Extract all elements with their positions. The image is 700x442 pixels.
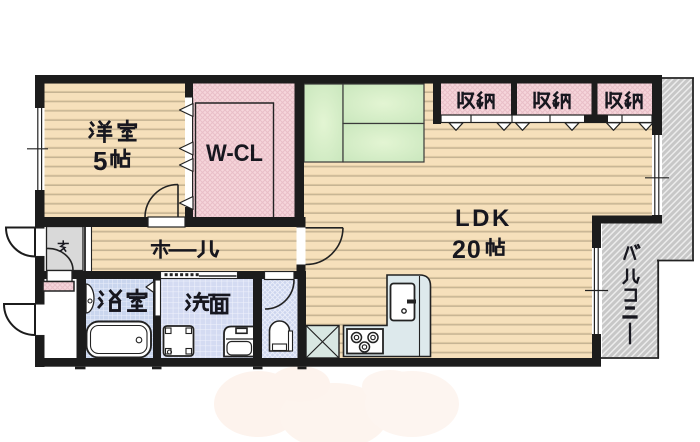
svg-text:5: 5 — [93, 146, 107, 176]
svg-text:LDK: LDK — [455, 205, 512, 232]
svg-text:W-CL: W-CL — [206, 140, 263, 167]
svg-text:20: 20 — [452, 236, 482, 264]
